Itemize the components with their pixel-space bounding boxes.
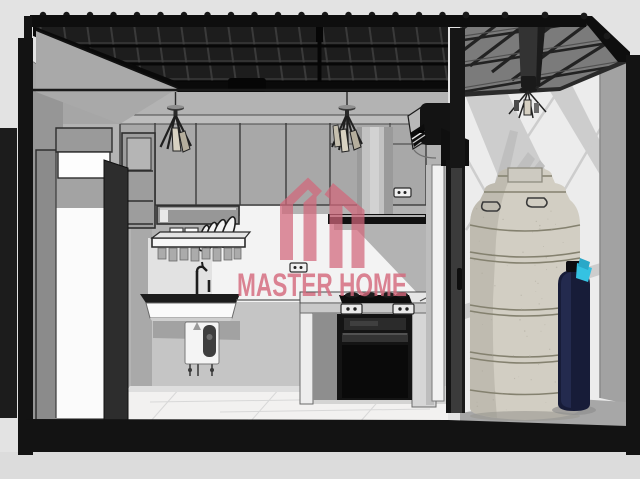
svg-text:MASTER HOME: MASTER HOME bbox=[237, 266, 407, 303]
